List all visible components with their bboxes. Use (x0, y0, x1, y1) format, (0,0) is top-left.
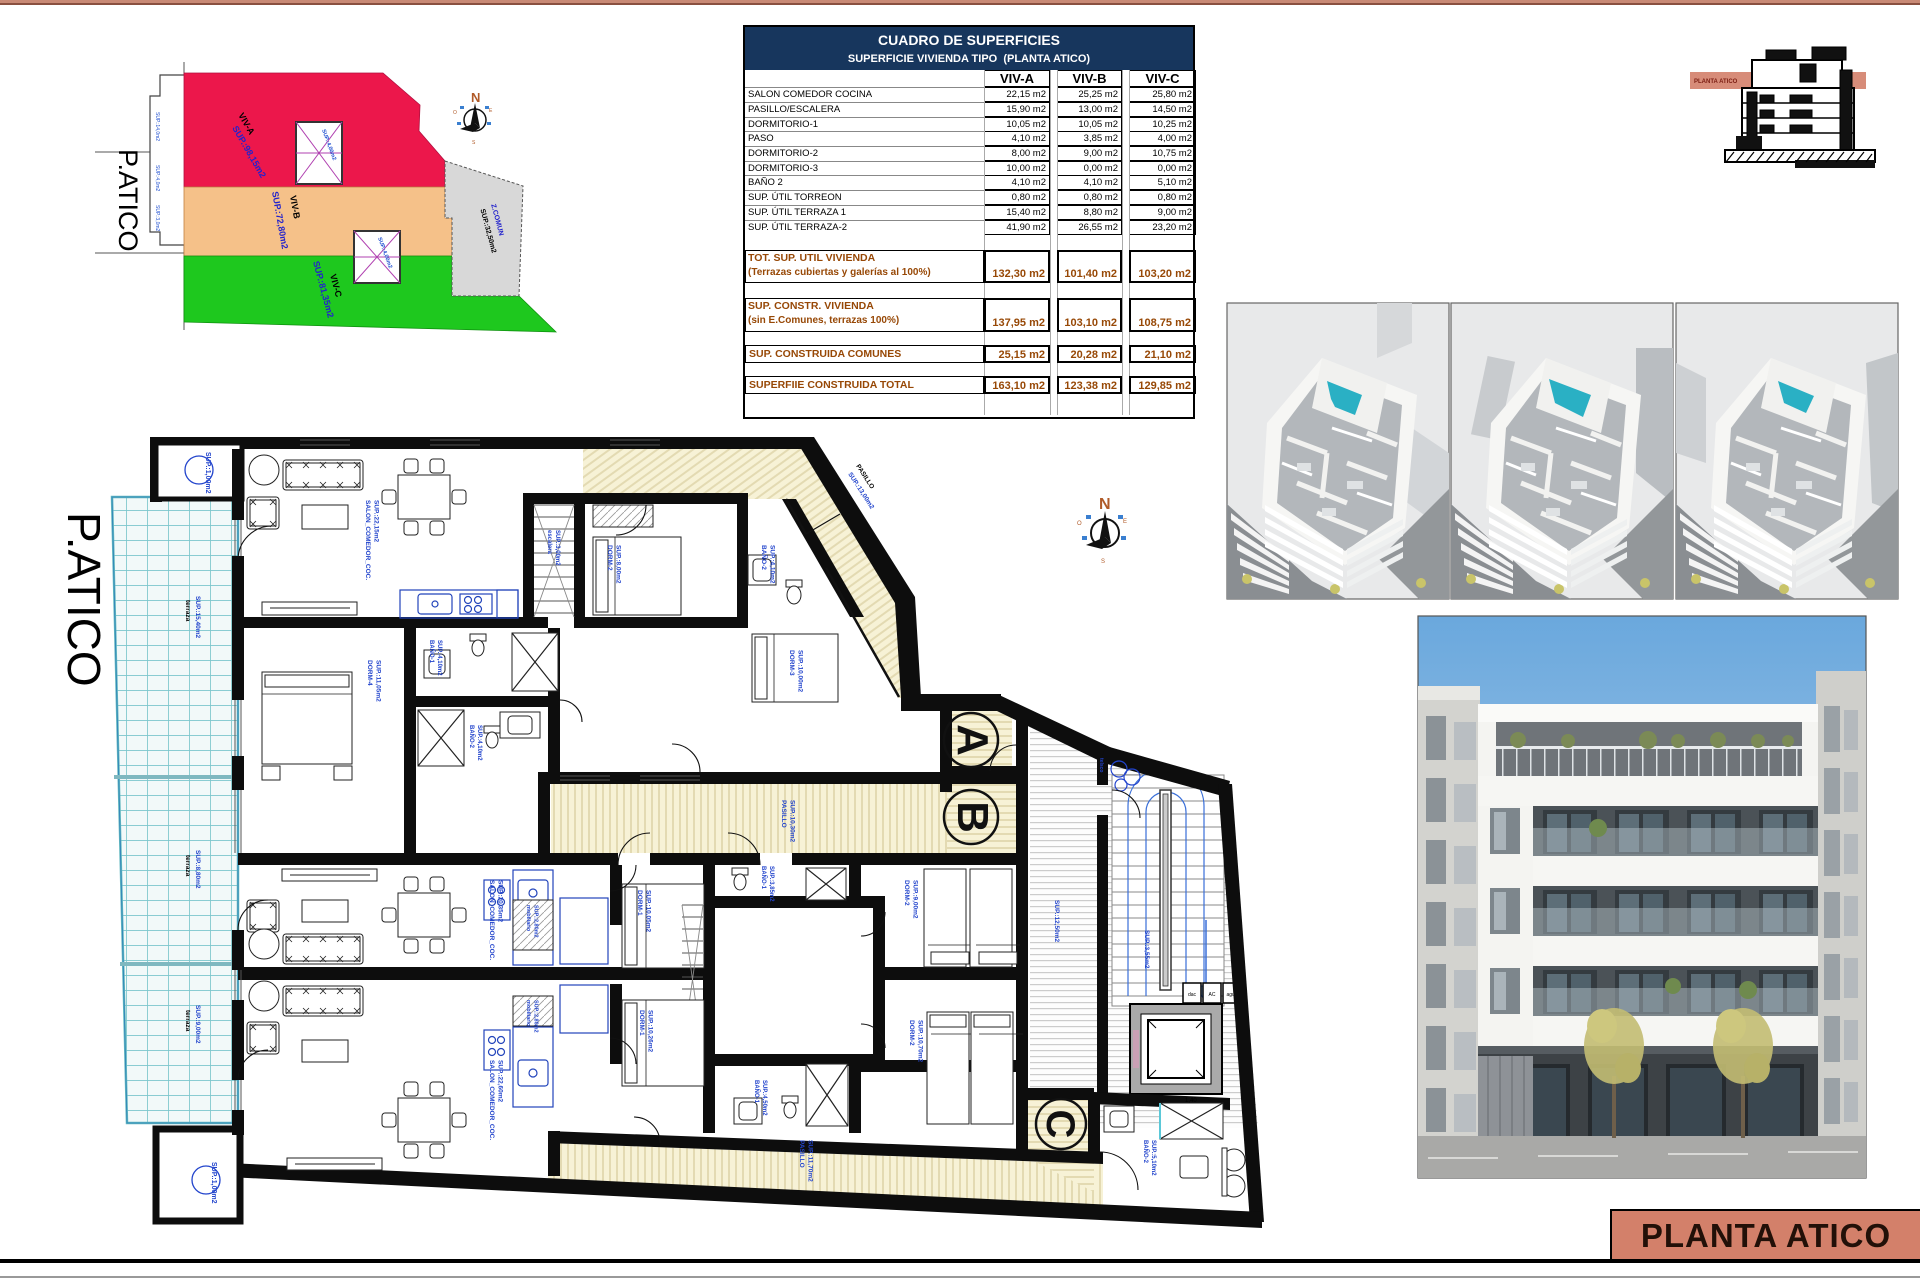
svg-text:SUP.:9,00m2: SUP.:9,00m2 (194, 1005, 201, 1044)
svg-text:SUP.:12,50m2: SUP.:12,50m2 (1053, 900, 1060, 943)
svg-text:SUP.:3,00m2: SUP.:3,00m2 (554, 530, 560, 566)
svg-text:BAÑO-1: BAÑO-1 (428, 640, 435, 664)
svg-text:DORM-3: DORM-3 (788, 650, 795, 676)
svg-text:PASILLO: PASILLO (798, 1140, 805, 1168)
svg-text:PASILLO: PASILLO (780, 800, 787, 828)
svg-text:SUP.:4,10m2: SUP.:4,10m2 (436, 640, 442, 676)
svg-text:DORM-4: DORM-4 (366, 660, 373, 686)
svg-text:SUP.:10,30m2: SUP.:10,30m2 (789, 800, 796, 843)
svg-text:SUP.:4,10m2: SUP.:4,10m2 (476, 725, 482, 761)
svg-text:SUP.:4,50m2: SUP.:4,50m2 (761, 1080, 767, 1116)
svg-text:SUP.:3,0m2: SUP.:3,0m2 (154, 205, 160, 232)
svg-text:SUP.:15,40m2: SUP.:15,40m2 (194, 596, 201, 639)
svg-text:P.ATICO: P.ATICO (58, 512, 110, 687)
svg-text:1,40: 1,40 (1185, 1098, 1197, 1104)
svg-text:terraza: terraza (184, 600, 191, 622)
svg-text:SUP.:10,05m2: SUP.:10,05m2 (645, 890, 652, 933)
svg-text:SALON_COMEDOR_COC.: SALON_COMEDOR_COC. (488, 1060, 495, 1140)
svg-text:PLANTA ATICO: PLANTA ATICO (1694, 79, 1738, 85)
svg-text:E: E (1123, 519, 1127, 525)
svg-text:BAÑO-2: BAÑO-2 (760, 545, 769, 570)
svg-text:N: N (1099, 496, 1111, 513)
svg-text:SUP.:10,00m2: SUP.:10,00m2 (797, 650, 804, 693)
svg-text:mobiliario: mobiliario (525, 905, 531, 932)
svg-text:P.ATICO: P.ATICO (113, 149, 143, 252)
svg-text:SUP.:10,26m2: SUP.:10,26m2 (647, 1010, 654, 1053)
svg-text:BAÑO-1: BAÑO-1 (753, 1080, 760, 1104)
svg-text:O: O (1077, 521, 1082, 527)
svg-text:AC: AC (1209, 992, 1216, 998)
svg-text:SUP.:20,35m2: SUP.:20,35m2 (497, 880, 504, 923)
svg-text:SUP.:22,60m2: SUP.:22,60m2 (497, 1060, 504, 1103)
svg-text:terraza: terraza (184, 1010, 191, 1032)
svg-text:SUP.:9,00m2: SUP.:9,00m2 (912, 880, 919, 919)
svg-text:telsco: telsco (1098, 758, 1104, 772)
svg-text:BAÑO-2: BAÑO-2 (1142, 1140, 1149, 1164)
svg-text:SALON_COMEDOR_COC.: SALON_COMEDOR_COC. (364, 500, 371, 580)
svg-text:SUP.:10,70m2: SUP.:10,70m2 (917, 1020, 924, 1063)
svg-text:SALON_COMEDOR_COC.: SALON_COMEDOR_COC. (488, 880, 495, 960)
svg-text:DORM-2: DORM-2 (606, 545, 613, 571)
svg-text:S: S (472, 140, 476, 146)
svg-text:E: E (489, 108, 493, 114)
svg-text:escalera: escalera (546, 530, 552, 555)
svg-text:SUP.:3,85m2: SUP.:3,85m2 (768, 866, 774, 902)
svg-text:DORM-1: DORM-1 (636, 890, 643, 916)
svg-text:A: A (948, 724, 997, 756)
svg-text:SUP.:11,05m2: SUP.:11,05m2 (375, 660, 382, 702)
svg-text:BAÑO-1: BAÑO-1 (760, 866, 767, 890)
svg-text:C: C (1038, 1110, 1082, 1139)
svg-text:SUP.:3,55m2: SUP.:3,55m2 (1143, 930, 1150, 969)
svg-text:SUP.:22,15m2: SUP.:22,15m2 (373, 500, 380, 543)
svg-text:SUP.:1,00m2: SUP.:1,00m2 (204, 452, 211, 494)
svg-text:S: S (1101, 559, 1105, 565)
svg-text:SUP.:8,80m2: SUP.:8,80m2 (194, 850, 201, 889)
svg-text:O: O (453, 110, 457, 116)
svg-text:mobiliario: mobiliario (525, 1000, 531, 1027)
svg-text:SUP.:14,0m2: SUP.:14,0m2 (154, 112, 160, 141)
svg-text:SUP.:2,80m2: SUP.:2,80m2 (533, 905, 539, 938)
svg-text:DORM-1: DORM-1 (638, 1010, 645, 1036)
svg-text:DORM-2: DORM-2 (903, 880, 910, 906)
svg-text:DORM-2: DORM-2 (908, 1020, 915, 1046)
svg-text:SUP.:11,70m2: SUP.:11,70m2 (807, 1140, 814, 1182)
svg-text:SUP.:1,00m2: SUP.:1,00m2 (210, 1162, 217, 1204)
svg-text:SUP.:4,10m2: SUP.:4,10m2 (769, 545, 776, 584)
svg-text:SUP.:2,80m2: SUP.:2,80m2 (533, 1000, 539, 1033)
svg-text:N: N (471, 90, 480, 105)
svg-text:B: B (948, 801, 997, 833)
svg-text:dac: dac (1188, 992, 1197, 998)
svg-text:SUP.:4,0m2: SUP.:4,0m2 (154, 165, 160, 192)
svg-text:SUP.:8,00m2: SUP.:8,00m2 (615, 545, 622, 584)
svg-text:terraza: terraza (184, 855, 191, 877)
svg-text:SUP.:5,10m2: SUP.:5,10m2 (1150, 1140, 1156, 1176)
svg-text:BAÑO-2: BAÑO-2 (468, 725, 475, 749)
